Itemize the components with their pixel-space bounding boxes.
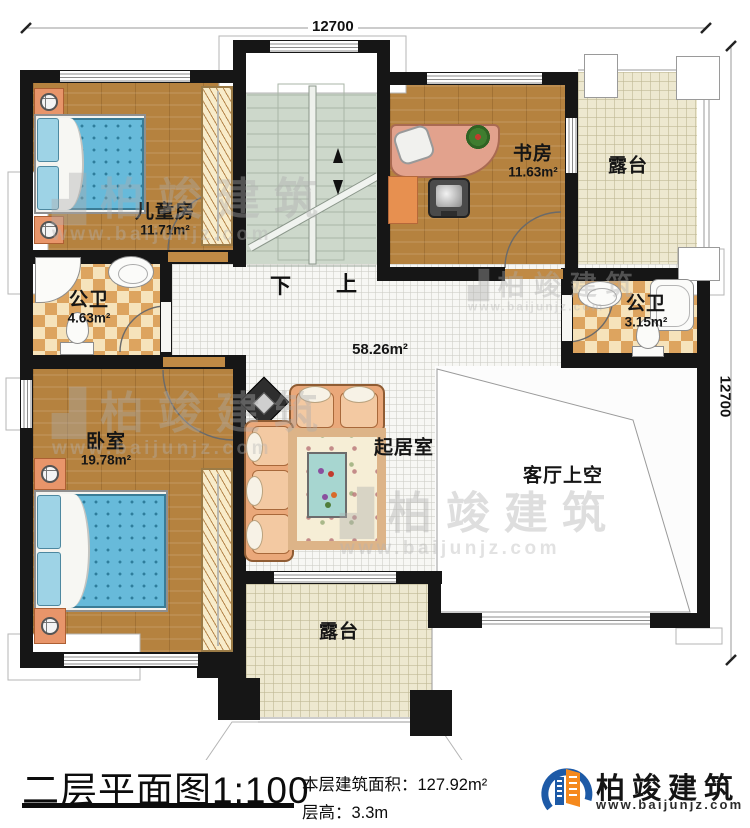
wall-outer-right [697,268,710,628]
dimension-top: 12700 [308,18,358,35]
window-children-top [60,71,190,82]
pillar-terrace-sw [218,678,260,720]
wall-study-right [565,72,578,281]
stair-up-label: 上 [336,268,357,298]
wall-stair-left [233,40,246,267]
study-door-arc [505,212,561,268]
stair-down-label: 下 [270,270,291,300]
lamp-icon [41,617,59,635]
window-bedroom-left [21,380,32,428]
study-label: 书房 11.63m² [508,144,558,179]
pillar-terrace-se [410,690,452,736]
wall-corner-block [197,652,246,678]
sofa-pillow [343,386,375,403]
lamp-icon [41,465,59,483]
bath-left-label: 公卫 4.63m² [68,290,111,325]
living-area-label: 58.26m² [352,342,408,358]
wardrobe-rail [217,91,219,241]
room-area: 4.63m² [68,311,111,326]
door-opening-study [505,269,563,279]
window-study-top [427,73,542,84]
eave-outline-bottom-right [676,628,722,644]
sink-basin [118,264,148,284]
room-name: 儿童房 [135,202,195,223]
room-area: 11.63m² [508,165,558,180]
sofa-pillow [299,386,331,403]
floor-height-label: 层高： [302,804,352,822]
lamp-icon [40,93,58,111]
wardrobe-rail [217,474,219,647]
window-bedroom-bottom [64,654,198,666]
monitor-stand [441,211,457,216]
table-flowers-icon [318,468,324,474]
title-underline [22,803,294,808]
window-sill-left [6,378,21,430]
sofa-pillow [246,432,263,462]
room-name: 起居室 [374,439,434,460]
pillar-terrace-top-left [584,54,618,98]
pillow [37,552,61,606]
children-room-label: 儿童房 11.71m² [135,202,195,237]
bedroom-label: 卧室 19.78m² [81,432,131,467]
room-name: 公卫 [68,290,111,311]
tv-icon [253,392,276,415]
living-room-label: 起居室 [374,439,434,460]
room-name: 书房 [508,144,558,165]
brand-url: www.baijunjz.com [596,797,743,812]
bedroom-wardrobe [201,468,233,652]
wall-study-bottom [377,267,505,281]
study-cabinet [388,176,418,224]
floor-area-value: 127.92m² [418,776,488,794]
void-label: 客厅上空 [523,467,603,488]
floor-area-label: 本层建筑面积： [302,776,418,794]
room-name: 客厅上空 [523,467,603,488]
pillar-terrace-mid-right [678,247,720,281]
floor-plan-sheet: 儿童房 11.71m² 书房 11.63m² 露台 公卫 4.63m² 公卫 3… [0,0,750,828]
terrace-bottom-railing [258,584,432,722]
bedroom-door-arc [163,370,233,440]
terrace-top-label: 露台 [608,157,648,178]
stair-handrail [309,86,316,264]
coffee-table [307,452,347,518]
room-name: 公卫 [625,294,668,315]
room-area: 3.15m² [625,315,668,330]
room-area: 58.26m² [352,342,408,358]
terrace-bottom-label: 露台 [319,623,359,644]
nightstand [34,88,64,116]
window-void-bottom [482,614,650,627]
pillar-terrace-top-right [676,56,720,100]
room-name: 露台 [608,157,648,178]
floor-area-line: 本层建筑面积：127.92m² [302,771,487,795]
bath-right-label: 公卫 3.15m² [625,294,668,329]
stair-direction-arrow-up [333,148,343,163]
nightstand [34,608,66,644]
window-stair-top [270,41,358,52]
sink-basin [587,288,617,306]
sofa-pillow [246,520,263,550]
dimension-right: 12700 [716,372,733,422]
door-opening-bath-left [161,302,171,352]
nightstand [34,216,64,244]
children-wardrobe [201,86,233,246]
plant-icon [464,124,492,150]
lamp-icon [40,221,58,239]
sink [108,256,154,288]
sofa-pillow [246,476,263,506]
pillow [37,166,59,210]
door-opening-bath-right [562,295,572,341]
pillow [37,495,61,549]
floor-height-value: 3.3m [352,804,389,822]
window-study-terrace [566,118,577,173]
sink [578,281,622,309]
window-terrace-bottom [274,572,396,583]
door-opening-bedroom [163,357,225,367]
room-name: 卧室 [81,432,131,453]
monitor-screen [436,185,462,207]
floor-height-line: 层高：3.3m [302,799,388,823]
room-area: 19.78m² [81,453,131,468]
brand-logo-icon [540,762,594,816]
nightstand [34,458,66,490]
room-area: 11.71m² [135,223,195,238]
void-outline [437,369,690,612]
door-opening-children [168,252,228,262]
wall-outer-left [20,70,33,668]
pillow [37,118,59,162]
room-name: 露台 [319,623,359,644]
computer-monitor [428,178,470,218]
wall-void-corner-h [428,613,482,628]
